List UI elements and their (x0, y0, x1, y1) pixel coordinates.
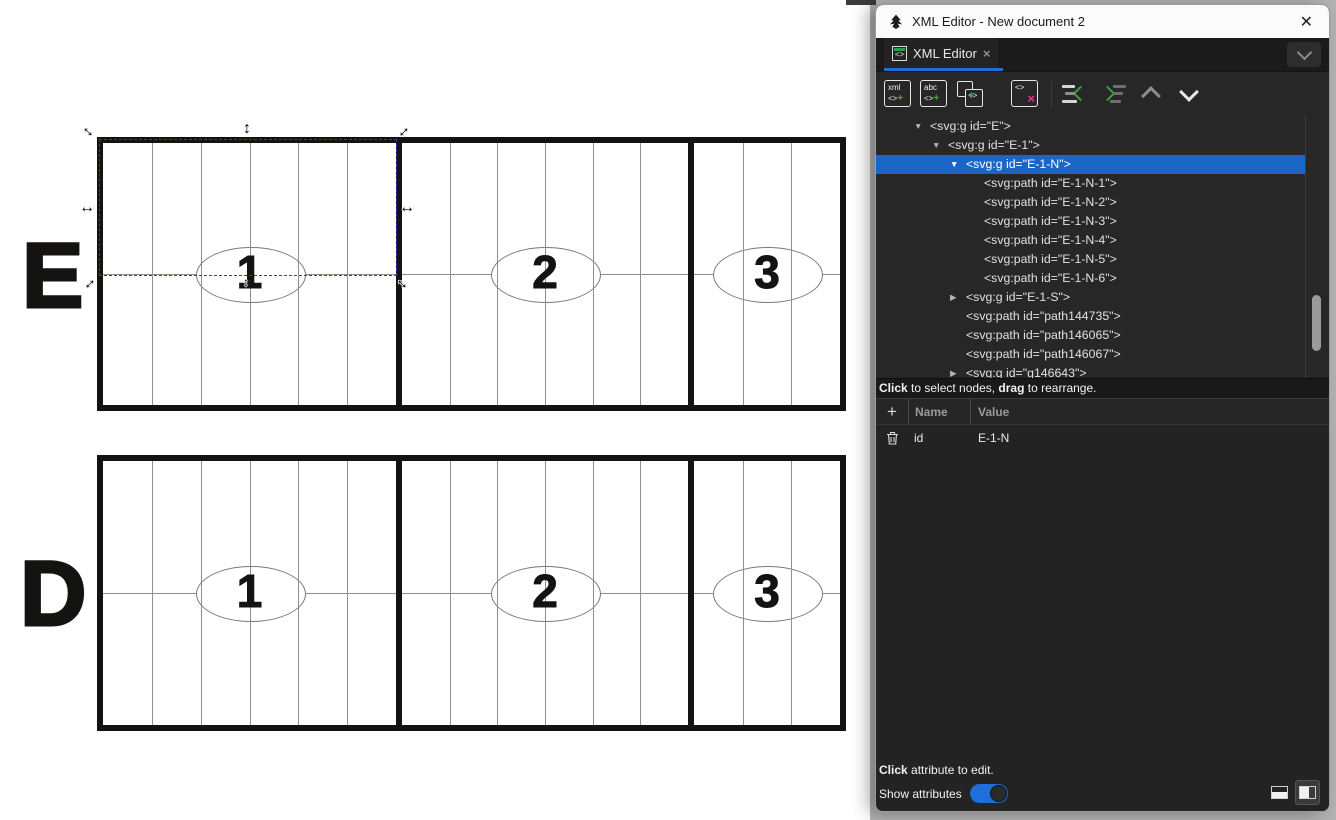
xml-tree-node[interactable]: <svg:path id="path146067"> (876, 345, 1306, 364)
xml-tree-node[interactable]: ▼<svg:g id="E-1-N"> (876, 155, 1306, 174)
collapse-icon[interactable]: ▼ (932, 136, 948, 155)
section-number: 2 (532, 245, 558, 299)
hint-bold-click: Click (879, 381, 908, 395)
plus-icon: + (933, 93, 939, 104)
xml-node-label: <svg:path id="path146067"> (966, 345, 1121, 364)
scale-handle-e[interactable]: ↔ (399, 200, 415, 216)
attr-value-header: Value (971, 405, 1009, 419)
grid-line (347, 461, 348, 725)
section-number: 1 (237, 564, 263, 618)
grid-line (152, 461, 153, 725)
xml-tree[interactable]: ▼<svg:g id="E">▼<svg:g id="E-1">▼<svg:g … (876, 115, 1306, 378)
hint-text: to rearrange. (1024, 381, 1096, 395)
delete-node-button[interactable]: <> × (1011, 80, 1038, 107)
attributes-header: + Name Value (876, 398, 1329, 425)
tag-glyph: <> (1015, 83, 1024, 92)
attribute-row[interactable]: id E-1-N (876, 425, 1329, 451)
xml-node-label: <svg:path id="E-1-N-5"> (984, 250, 1117, 269)
attr-name-header: Name (909, 405, 970, 419)
label: xml (888, 83, 900, 92)
scale-handle-w[interactable]: ↔ (79, 200, 95, 216)
scale-handle-n[interactable]: ↕ (243, 121, 251, 137)
duplicate-node-button[interactable]: <> + (956, 80, 983, 107)
xml-tree-node[interactable]: <svg:path id="E-1-N-5"> (876, 250, 1306, 269)
xml-toolbar: xml <>+ abc <>+ <> + <> × (876, 71, 1329, 115)
tab-label: XML Editor (913, 46, 977, 61)
hint-bold-drag: drag (998, 381, 1024, 395)
row-D-section-2[interactable]: 2 (402, 461, 694, 725)
grid-line (450, 143, 451, 405)
active-tab-indicator (884, 68, 1003, 71)
show-attributes-label: Show attributes (879, 787, 962, 801)
bar (1062, 85, 1075, 88)
xml-node-label: <svg:g id="E-1"> (948, 136, 1040, 155)
bar (1065, 92, 1075, 95)
plus-icon: + (968, 91, 981, 107)
xml-tree-node[interactable]: <svg:path id="E-1-N-1"> (876, 174, 1306, 193)
xml-tag-icon: <> (892, 46, 907, 61)
trash-icon (886, 431, 899, 445)
xml-tree-node[interactable]: <svg:path id="E-1-N-3"> (876, 212, 1306, 231)
section-number: 2 (532, 564, 558, 618)
grid-line (450, 461, 451, 725)
bar (1113, 92, 1123, 95)
tab-close-icon[interactable]: × (983, 46, 991, 61)
section-number: 3 (754, 245, 780, 299)
xml-node-label: <svg:path id="E-1-N-6"> (984, 269, 1117, 288)
grid-line (640, 143, 641, 405)
xml-tree-node[interactable]: ▼<svg:g id="E-1"> (876, 136, 1306, 155)
grid-line (497, 143, 498, 405)
xml-tree-node[interactable]: <svg:path id="path144735"> (876, 307, 1306, 326)
show-attributes-toggle[interactable] (970, 784, 1008, 803)
grid-line (593, 143, 594, 405)
attribute-name[interactable]: id (908, 431, 970, 445)
tab-xml-editor[interactable]: <> XML Editor × (884, 38, 998, 68)
vertical-split-icon (1299, 786, 1316, 799)
bar (1110, 100, 1121, 103)
plus-icon: + (897, 93, 903, 104)
background-window-edge (846, 0, 876, 5)
xml-node-label: <svg:path id="E-1-N-4"> (984, 231, 1117, 250)
hint-text: attribute to edit. (908, 763, 994, 777)
panel-menu-button[interactable] (1287, 42, 1321, 67)
chevron-up-icon (1141, 86, 1161, 106)
row-D-section-1[interactable]: 1 (103, 461, 402, 725)
bar (1062, 100, 1077, 103)
attributes-empty-area (876, 451, 1329, 760)
duplicate-front-square: <> + (965, 89, 983, 107)
chevron-down-icon (1296, 45, 1312, 61)
attribute-value[interactable]: E-1-N (970, 431, 1009, 445)
selection-dashed-rect (99, 139, 397, 276)
horizontal-layout-button[interactable] (1267, 780, 1292, 805)
delete-attribute-button[interactable] (876, 431, 908, 445)
row-E-section-2[interactable]: 2 (402, 143, 694, 405)
xml-tree-node[interactable]: ▼<svg:g id="E"> (876, 117, 1306, 136)
bar (1113, 85, 1126, 88)
xml-editor-dialog: XML Editor - New document 2 ✕ <> XML Edi… (875, 4, 1330, 812)
expand-icon[interactable]: ▶ (950, 288, 966, 307)
xml-node-label: <svg:path id="E-1-N-2"> (984, 193, 1117, 212)
grid-line (497, 461, 498, 725)
grid-line (201, 461, 202, 725)
tree-hint: Click to select nodes, drag to rearrange… (876, 378, 1329, 398)
xml-node-label: <svg:path id="E-1-N-3"> (984, 212, 1117, 231)
new-text-node-button[interactable]: abc <>+ (920, 80, 947, 107)
vertical-layout-button[interactable] (1295, 780, 1320, 805)
xml-node-label: <svg:g id="E-1-N"> (966, 155, 1071, 174)
dialog-footer: Click attribute to edit. Show attributes (876, 760, 1329, 811)
tree-scrollbar[interactable] (1305, 115, 1329, 378)
canvas-letter-E[interactable]: E (22, 241, 83, 313)
layout-buttons (1267, 780, 1320, 805)
canvas-letter-D[interactable]: D (20, 559, 86, 631)
horizontal-split-icon (1271, 786, 1288, 799)
section-number: 3 (754, 564, 780, 618)
tab-bar: <> XML Editor × (876, 38, 1329, 71)
grid-line (640, 461, 641, 725)
grid-line (298, 461, 299, 725)
xml-tree-node[interactable]: <svg:path id="E-1-N-4"> (876, 231, 1306, 250)
move-node-down-button[interactable] (1176, 82, 1202, 106)
chevron-down-icon (1179, 82, 1199, 102)
indent-node-button[interactable] (1100, 82, 1126, 106)
chevron-left-icon (1073, 85, 1089, 101)
row-D-frame: 1 2 3 (97, 455, 846, 731)
add-attribute-button[interactable]: + (876, 400, 908, 423)
hint-text: to select nodes, (908, 381, 999, 395)
expand-icon[interactable]: ▶ (950, 364, 966, 378)
scrollbar-thumb[interactable] (1312, 295, 1321, 351)
show-attributes-row: Show attributes (879, 784, 1329, 803)
grid-line (743, 143, 744, 405)
dialog-titlebar[interactable]: XML Editor - New document 2 ✕ (876, 5, 1329, 38)
toggle-knob (990, 785, 1007, 802)
close-icon[interactable]: ✕ (1294, 12, 1319, 32)
xml-node-label: <svg:path id="path144735"> (966, 307, 1121, 326)
inkscape-logo-icon (888, 14, 904, 30)
grid-line (791, 461, 792, 725)
row-E-section-3[interactable]: 3 (694, 143, 840, 405)
xml-node-label: <svg:g id="E"> (930, 117, 1011, 136)
grid-line (791, 143, 792, 405)
xml-tree-node[interactable]: <svg:path id="path146065"> (876, 326, 1306, 345)
delete-x-icon: × (1027, 91, 1035, 106)
new-element-node-button[interactable]: xml <>+ (884, 80, 911, 107)
hint-bold: Click (879, 763, 908, 777)
xml-node-label: <svg:g id="g146643"> (966, 364, 1087, 378)
label: abc (924, 83, 937, 92)
xml-tree-node[interactable]: ▶<svg:g id="E-1-S"> (876, 288, 1306, 307)
collapse-icon[interactable]: ▼ (950, 155, 966, 174)
dialog-title: XML Editor - New document 2 (912, 14, 1085, 29)
tag-glyph: <> (924, 94, 933, 103)
unindent-node-button[interactable] (1062, 82, 1088, 106)
xml-tree-node[interactable]: <svg:path id="E-1-N-2"> (876, 193, 1306, 212)
collapse-icon[interactable]: ▼ (914, 117, 930, 136)
xml-tree-node[interactable]: ▶<svg:g id="g146643"> (876, 364, 1306, 378)
xml-tree-wrap: ▼<svg:g id="E">▼<svg:g id="E-1">▼<svg:g … (876, 115, 1329, 378)
toolbar-separator (1051, 81, 1052, 107)
xml-node-label: <svg:path id="E-1-N-1"> (984, 174, 1117, 193)
scale-handle-s[interactable]: ↕ (243, 276, 249, 288)
xml-node-label: <svg:path id="path146065"> (966, 326, 1121, 345)
move-node-up-button[interactable] (1138, 82, 1164, 106)
tag-glyph: <> (888, 94, 897, 103)
xml-tree-node[interactable]: <svg:path id="E-1-N-6"> (876, 269, 1306, 288)
row-D-section-3[interactable]: 3 (694, 461, 840, 725)
grid-line (593, 461, 594, 725)
xml-node-label: <svg:g id="E-1-S"> (966, 288, 1070, 307)
attribute-hint: Click attribute to edit. (879, 762, 1329, 779)
grid-line (743, 461, 744, 725)
